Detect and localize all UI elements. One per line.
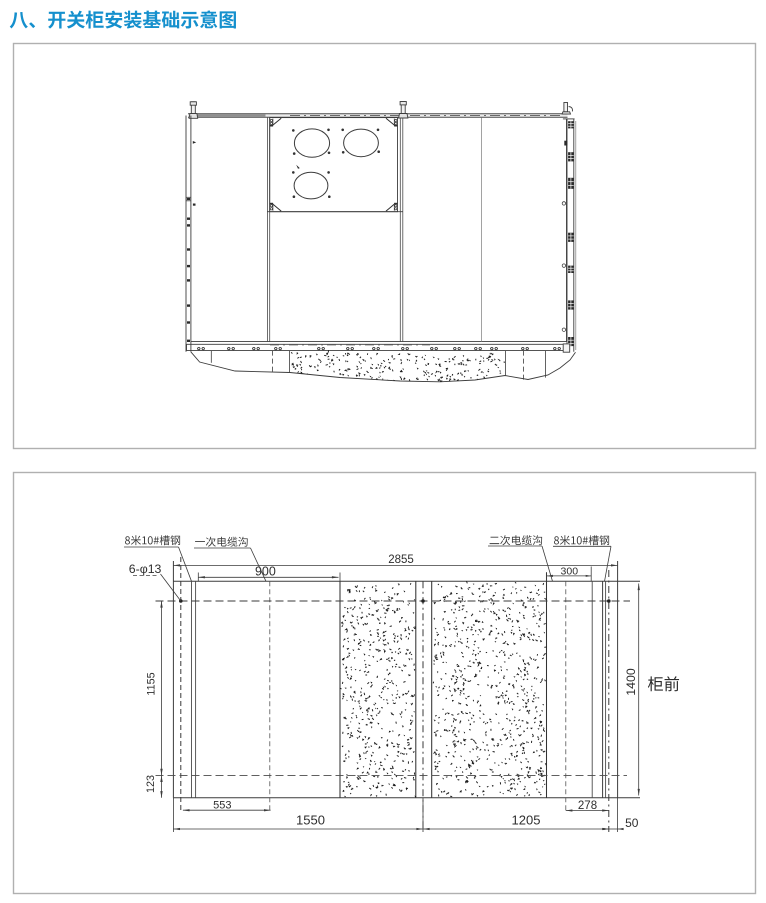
svg-text:900: 900	[255, 565, 276, 579]
svg-text:2855: 2855	[388, 554, 414, 566]
svg-text:1205: 1205	[512, 813, 541, 828]
svg-text:6-φ13: 6-φ13	[129, 562, 162, 576]
svg-text:300: 300	[561, 566, 579, 578]
svg-text:1155: 1155	[146, 672, 158, 695]
svg-text:553: 553	[213, 800, 231, 812]
svg-text:123: 123	[145, 775, 157, 793]
svg-text:50: 50	[625, 816, 639, 830]
svg-text:1400: 1400	[624, 668, 638, 696]
svg-text:278: 278	[578, 800, 597, 812]
svg-text:1550: 1550	[296, 813, 325, 828]
